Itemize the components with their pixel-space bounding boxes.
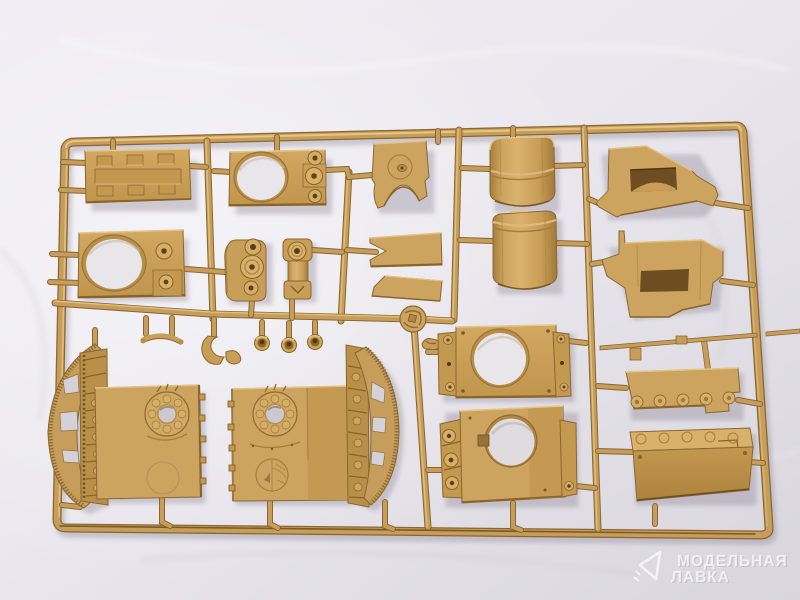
- svg-text:ЛАВКА: ЛАВКА: [671, 569, 730, 586]
- svg-text:МОДЕЛЬНАЯ: МОДЕЛЬНАЯ: [677, 553, 788, 570]
